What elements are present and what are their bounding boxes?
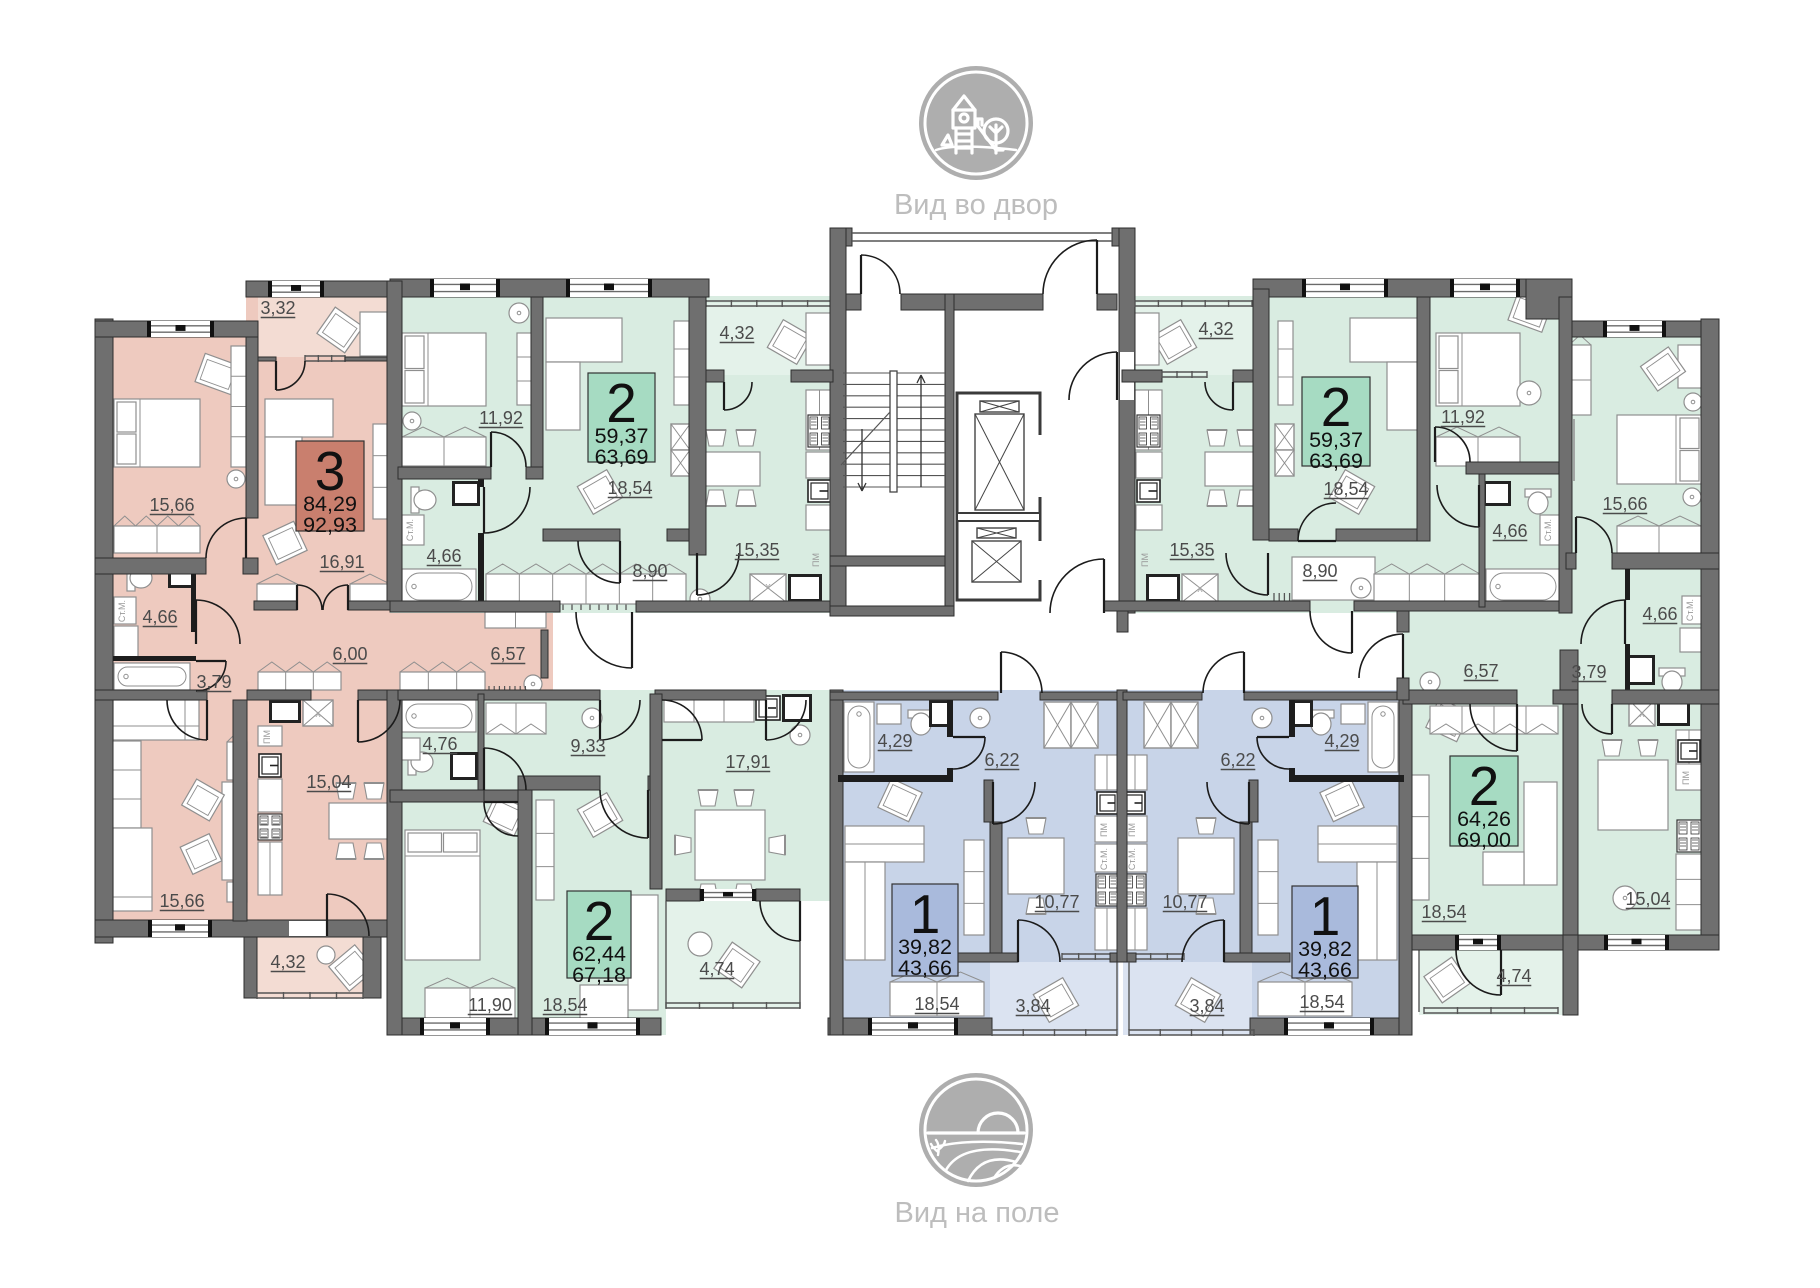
- svg-text:4,29: 4,29: [877, 731, 912, 751]
- svg-text:18,54: 18,54: [542, 995, 587, 1015]
- svg-text:11,92: 11,92: [1441, 407, 1485, 427]
- svg-text:4,32: 4,32: [719, 323, 754, 343]
- svg-text:x: x: [1639, 708, 1645, 720]
- svg-text:3,84: 3,84: [1015, 996, 1050, 1016]
- svg-text:15,66: 15,66: [1602, 494, 1647, 514]
- svg-text:x: x: [1197, 583, 1203, 595]
- svg-text:43,66: 43,66: [898, 956, 952, 980]
- svg-text:6,57: 6,57: [490, 644, 525, 664]
- svg-text:63,69: 63,69: [1309, 449, 1363, 473]
- svg-text:6,00: 6,00: [332, 644, 367, 664]
- svg-text:92,93: 92,93: [303, 513, 357, 537]
- svg-text:10,77: 10,77: [1034, 892, 1079, 912]
- svg-text:8,90: 8,90: [632, 561, 667, 581]
- svg-text:ПМ: ПМ: [1127, 823, 1137, 837]
- svg-text:17,91: 17,91: [725, 752, 770, 772]
- svg-text:4,66: 4,66: [142, 607, 177, 627]
- svg-text:4,32: 4,32: [270, 952, 305, 972]
- svg-text:Вид во двор: Вид во двор: [894, 189, 1058, 221]
- svg-text:18,54: 18,54: [1323, 479, 1368, 499]
- svg-text:Ст.М.: Ст.М.: [405, 519, 415, 541]
- svg-text:ПМ: ПМ: [262, 730, 272, 744]
- svg-text:18,54: 18,54: [914, 994, 959, 1014]
- svg-text:3,84: 3,84: [1189, 996, 1224, 1016]
- svg-text:Ст.М.: Ст.М.: [1099, 848, 1109, 870]
- svg-text:18,54: 18,54: [1299, 992, 1344, 1012]
- svg-text:18,54: 18,54: [607, 478, 652, 498]
- svg-text:6,22: 6,22: [984, 750, 1019, 770]
- svg-text:11,92: 11,92: [479, 408, 523, 428]
- svg-text:43,66: 43,66: [1298, 958, 1352, 982]
- svg-text:18,54: 18,54: [1421, 902, 1466, 922]
- svg-text:8,90: 8,90: [1302, 561, 1337, 581]
- svg-text:3,79: 3,79: [1571, 662, 1606, 682]
- svg-text:Ст.М.: Ст.М.: [1685, 599, 1695, 621]
- svg-text:ПМ: ПМ: [1099, 823, 1109, 837]
- svg-text:15,04: 15,04: [1625, 889, 1670, 909]
- svg-text:3,32: 3,32: [260, 298, 295, 318]
- svg-text:16,91: 16,91: [319, 552, 364, 572]
- svg-text:4,74: 4,74: [1496, 966, 1531, 986]
- svg-text:4,29: 4,29: [1324, 731, 1359, 751]
- svg-text:4,74: 4,74: [699, 959, 734, 979]
- svg-text:6,57: 6,57: [1463, 661, 1498, 681]
- svg-text:x: x: [315, 708, 321, 720]
- svg-text:Вид на поле: Вид на поле: [895, 1197, 1060, 1229]
- svg-text:69,00: 69,00: [1457, 828, 1511, 852]
- svg-text:6,22: 6,22: [1220, 750, 1255, 770]
- svg-text:9,33: 9,33: [570, 736, 605, 756]
- svg-text:4,66: 4,66: [426, 546, 461, 566]
- svg-text:15,66: 15,66: [149, 495, 194, 515]
- svg-text:15,04: 15,04: [306, 772, 351, 792]
- svg-text:ПМ: ПМ: [1681, 771, 1691, 785]
- svg-text:Ст.М.: Ст.М.: [1543, 519, 1553, 541]
- svg-text:4,76: 4,76: [422, 734, 457, 754]
- svg-text:11,90: 11,90: [468, 995, 512, 1015]
- svg-text:15,35: 15,35: [734, 540, 779, 560]
- svg-text:x: x: [765, 581, 771, 593]
- svg-text:ПМ: ПМ: [1140, 553, 1150, 567]
- svg-text:4,32: 4,32: [1198, 319, 1233, 339]
- svg-text:4,66: 4,66: [1642, 604, 1677, 624]
- svg-text:Ст.М.: Ст.М.: [1127, 848, 1137, 870]
- svg-text:3,79: 3,79: [196, 672, 231, 692]
- svg-text:15,35: 15,35: [1169, 540, 1214, 560]
- svg-text:63,69: 63,69: [595, 445, 649, 469]
- svg-text:15,66: 15,66: [159, 891, 204, 911]
- svg-text:10,77: 10,77: [1162, 892, 1207, 912]
- svg-text:ПМ: ПМ: [811, 553, 821, 567]
- svg-text:67,18: 67,18: [572, 963, 626, 987]
- svg-text:4,66: 4,66: [1492, 521, 1527, 541]
- svg-text:Ст.М.: Ст.М.: [117, 600, 127, 622]
